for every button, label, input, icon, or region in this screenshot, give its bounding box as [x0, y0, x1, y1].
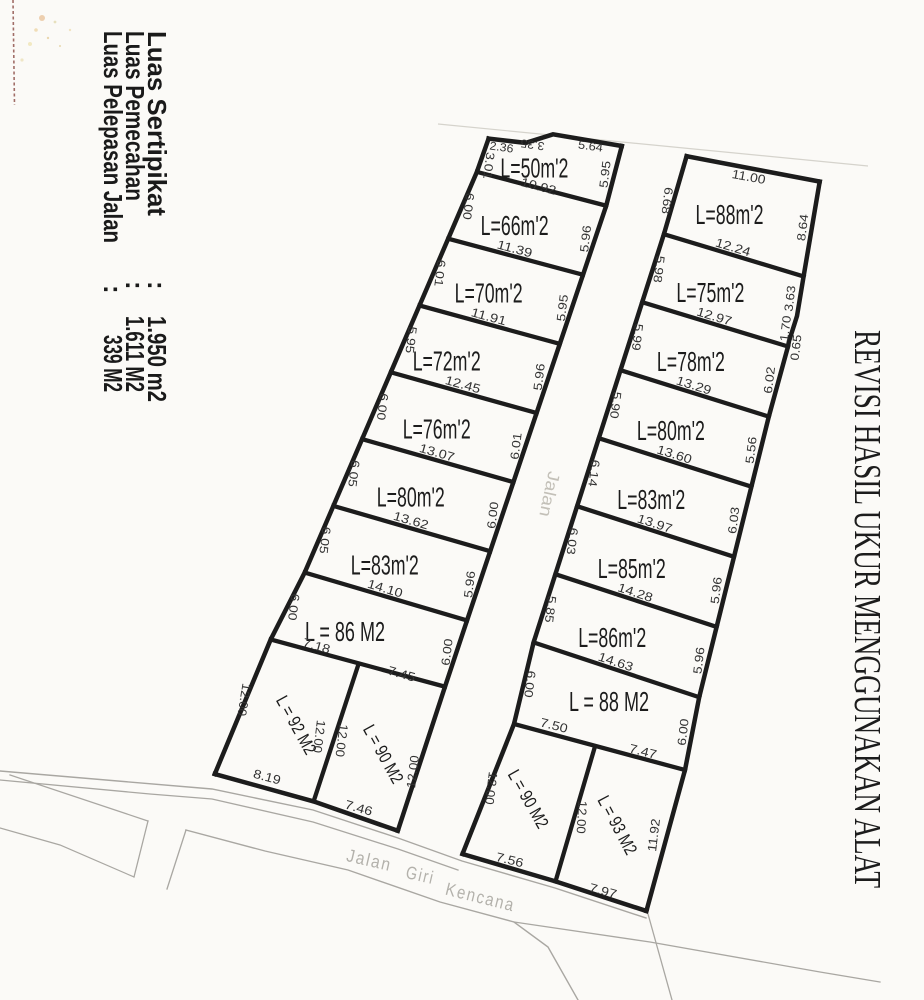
svg-text:Luas Pelepasan Jalan: Luas Pelepasan Jalan	[98, 31, 128, 243]
svg-text:L=76m'2: L=76m'2	[403, 414, 471, 445]
svg-text:L=86m'2: L=86m'2	[578, 622, 646, 653]
svg-text::: :	[98, 285, 128, 294]
svg-text:L=80m'2: L=80m'2	[377, 482, 445, 513]
svg-text:REVISI HASIL UKUR MENGGUNAKAN: REVISI HASIL UKUR MENGGUNAKAN ALAT	[846, 330, 888, 888]
svg-text:12.00: 12.00	[574, 800, 590, 834]
svg-text:L=80m'2: L=80m'2	[637, 415, 705, 446]
svg-text:L=83m'2: L=83m'2	[351, 550, 419, 581]
svg-text:L=85m'2: L=85m'2	[598, 553, 666, 584]
svg-text:L=75m'2: L=75m'2	[676, 277, 744, 308]
svg-text:L=88m'2: L=88m'2	[696, 199, 764, 230]
svg-text:L = 88 M2: L = 88 M2	[569, 686, 649, 717]
svg-text:L=83m'2: L=83m'2	[617, 484, 685, 515]
svg-text:339 M2: 339 M2	[98, 335, 128, 392]
svg-text:L=66m'2: L=66m'2	[481, 210, 549, 241]
svg-text:L=78m'2: L=78m'2	[657, 346, 725, 377]
svg-text:L=70m'2: L=70m'2	[455, 278, 523, 309]
